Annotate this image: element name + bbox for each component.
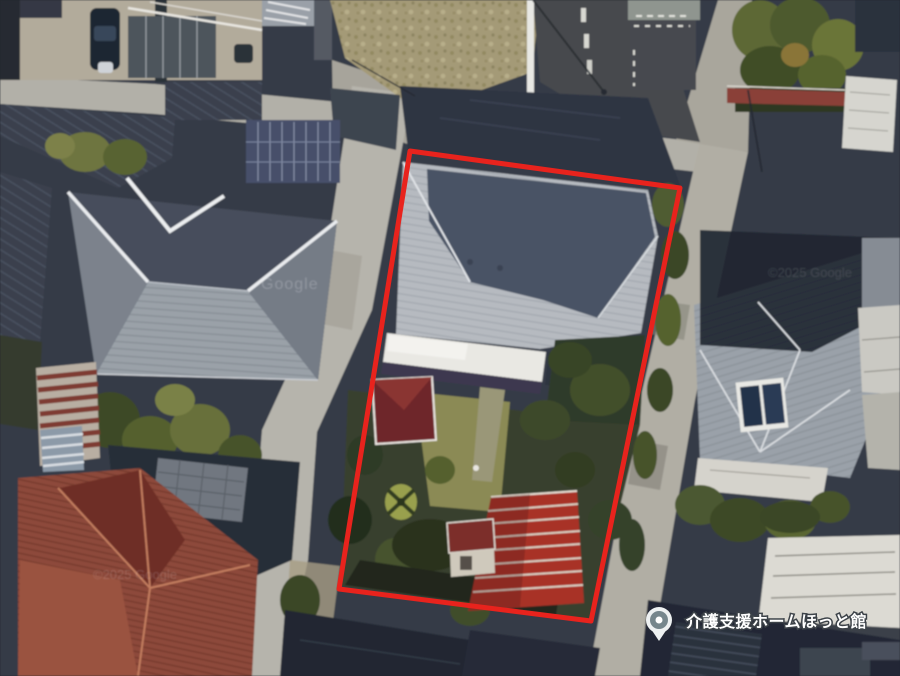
satellite-imagery: Google ©2025 Google ©2025 Google 介護支援ホーム… <box>0 0 900 676</box>
watermark-copyright-left: ©2025 Google <box>93 567 177 582</box>
watermark-copyright-right: ©2025 Google <box>768 265 852 280</box>
satellite-map-view[interactable]: Google ©2025 Google ©2025 Google 介護支援ホーム… <box>0 0 900 676</box>
poi-marker-label[interactable]: 介護支援ホームほっと館 <box>685 612 867 631</box>
watermark-google: Google <box>261 276 319 293</box>
